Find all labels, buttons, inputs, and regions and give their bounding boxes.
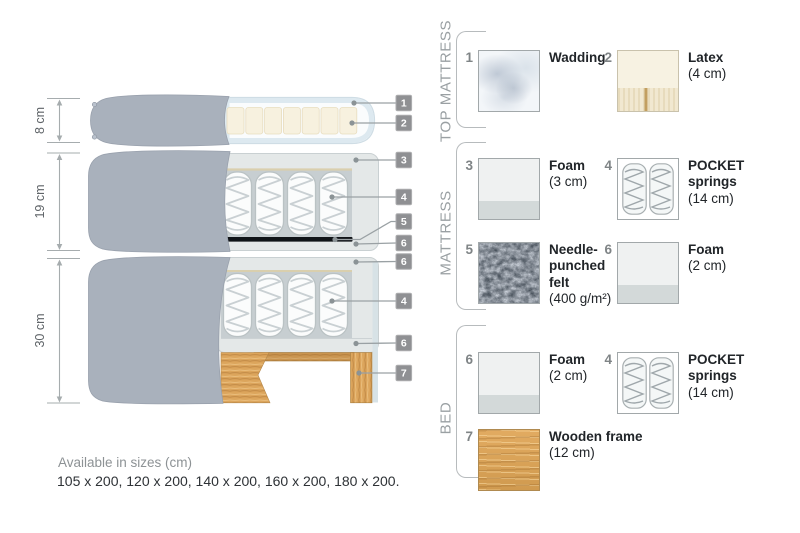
callout-tag-3: 3 <box>396 152 412 168</box>
dimension-8cm-label: 8 cm <box>33 107 47 134</box>
item-number: 5 <box>458 242 473 258</box>
callout-tag-5: 5 <box>396 214 412 230</box>
latex-swatch <box>617 50 679 112</box>
legend-item-foam-bed: 6 Foam (2 cm) <box>458 352 621 414</box>
latex-blocks <box>227 108 357 135</box>
item-number: 6 <box>598 242 612 258</box>
svg-text:6: 6 <box>401 256 407 268</box>
bed-construction-page: 8 cm 19 cm 30 cm <box>0 0 800 533</box>
dimension-8cm <box>47 99 80 143</box>
item-name: POCKET springs <box>688 158 760 191</box>
top-mattress-illustration <box>91 95 375 146</box>
callout-tag-6: 6 <box>396 235 412 251</box>
section-title-mattress: MATTRESS <box>438 190 455 275</box>
section-title-bed: BED <box>438 402 455 435</box>
item-name: POCKET springs <box>688 352 760 385</box>
item-number: 6 <box>458 352 473 368</box>
dimension-19cm-label: 19 cm <box>33 184 47 218</box>
needle-punched-felt-swatch <box>478 242 540 304</box>
mattress-cover <box>89 151 231 253</box>
section-title-top-mattress: TOP MATTRESS <box>438 20 455 142</box>
bed-cross-section-diagram: 8 cm 19 cm 30 cm <box>0 0 435 533</box>
callout-tag-1: 1 <box>396 95 412 111</box>
callout-tag-6b: 6 <box>396 254 412 270</box>
foam-swatch <box>478 352 540 414</box>
legend-item-latex: 2 Latex (4 cm) <box>598 50 760 112</box>
dimension-30cm <box>47 259 80 404</box>
svg-text:5: 5 <box>401 216 407 228</box>
item-number: 7 <box>458 429 473 445</box>
item-number: 3 <box>458 158 473 174</box>
legend-item-wooden-frame: 7 Wooden frame (12 cm) <box>458 429 719 491</box>
callout-tag-4b: 4 <box>396 293 412 309</box>
availability-label: Available in sizes (cm) <box>58 455 192 470</box>
legend-item-foam-3cm: 3 Foam (3 cm) <box>458 158 621 220</box>
item-size: (2 cm) <box>688 258 760 274</box>
item-name: Wooden frame <box>549 429 719 445</box>
legend-item-foam-2cm: 6 Foam (2 cm) <box>598 242 760 304</box>
foam-swatch <box>478 158 540 220</box>
svg-text:2: 2 <box>401 118 407 130</box>
wadding-swatch <box>478 50 540 112</box>
item-number: 4 <box>598 158 612 174</box>
callout-tag-7: 7 <box>396 365 412 381</box>
callout-tag-6c: 6 <box>396 335 412 351</box>
dimension-19cm <box>47 153 80 251</box>
available-sizes: 105 x 200, 120 x 200, 140 x 200, 160 x 2… <box>57 473 400 489</box>
item-number: 1 <box>458 50 473 66</box>
bed-cover <box>89 257 231 404</box>
item-size: (14 cm) <box>688 191 760 207</box>
item-size: (14 cm) <box>688 385 760 401</box>
legend-item-felt: 5 Needle-punched felt (40 <box>458 242 621 308</box>
item-size: (12 cm) <box>549 445 719 461</box>
item-number: 4 <box>598 352 612 368</box>
legend-item-pocket-springs: 4 POCKET springs (14 cm) <box>598 158 760 220</box>
callout-tag-4: 4 <box>396 189 412 205</box>
svg-text:4: 4 <box>401 296 407 308</box>
legend-item-wadding: 1 Wadding <box>458 50 621 112</box>
svg-text:6: 6 <box>401 238 407 250</box>
foam-swatch <box>617 242 679 304</box>
svg-text:4: 4 <box>401 192 407 204</box>
item-number: 2 <box>598 50 612 66</box>
top-mattress-cover <box>91 95 230 146</box>
dimension-30cm-label: 30 cm <box>33 313 47 347</box>
item-size: (4 cm) <box>688 66 760 82</box>
svg-text:6: 6 <box>401 338 407 350</box>
svg-text:3: 3 <box>401 155 407 167</box>
legend-item-pocket-springs-bed: 4 POCKET springs (14 cm) <box>598 352 760 414</box>
pocket-springs-swatch <box>617 352 679 414</box>
callout-tag-2: 2 <box>396 115 412 131</box>
item-name: Latex <box>688 50 760 66</box>
pocket-springs-swatch <box>617 158 679 220</box>
wooden-frame-swatch <box>478 429 540 491</box>
bed-base-illustration <box>89 257 379 404</box>
item-name: Foam <box>688 242 760 258</box>
svg-text:1: 1 <box>401 98 407 110</box>
svg-text:7: 7 <box>401 368 407 380</box>
